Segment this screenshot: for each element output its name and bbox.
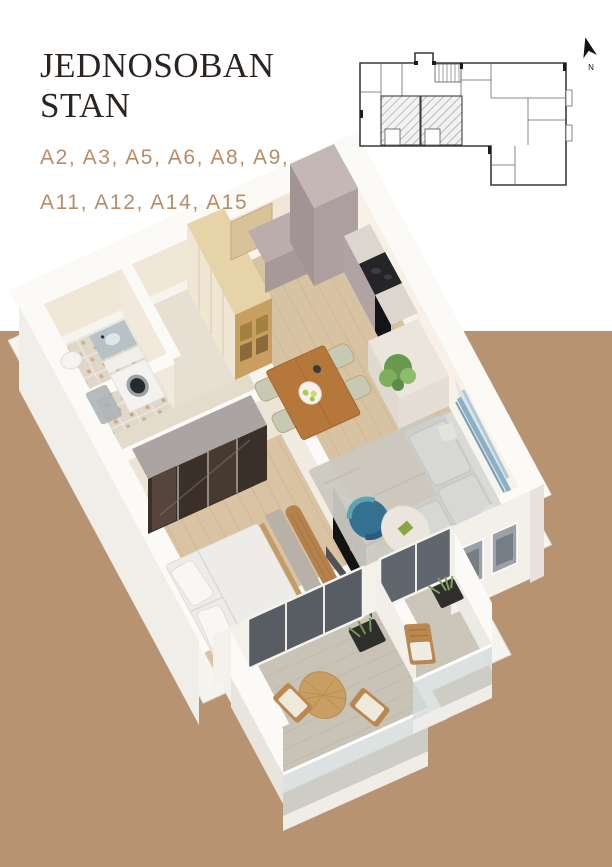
north-arrow: N [578, 36, 604, 82]
brochure-page: JEDNOSOBAN STAN A2, A3, A5, A6, A8, A9, … [0, 0, 612, 867]
page-title: JEDNOSOBAN STAN [40, 46, 289, 126]
site-plan-thumbnail [340, 30, 612, 210]
north-label: N [588, 63, 594, 72]
north-arrow-icon [579, 36, 597, 58]
header-block: JEDNOSOBAN STAN A2, A3, A5, A6, A8, A9, … [40, 46, 289, 236]
page-title-line1: JEDNOSOBAN [40, 46, 289, 86]
building-outline [360, 53, 572, 185]
page-title-line2: STAN [40, 86, 289, 126]
unit-codes: A2, A3, A5, A6, A8, A9, A11, A12, A14, A… [40, 146, 289, 215]
stairs-icon [435, 64, 461, 82]
unit-codes-line2: A11, A12, A14, A15 [40, 191, 289, 215]
unit-codes-line1: A2, A3, A5, A6, A8, A9, [40, 146, 289, 170]
highlighted-unit-hatch [381, 96, 462, 145]
